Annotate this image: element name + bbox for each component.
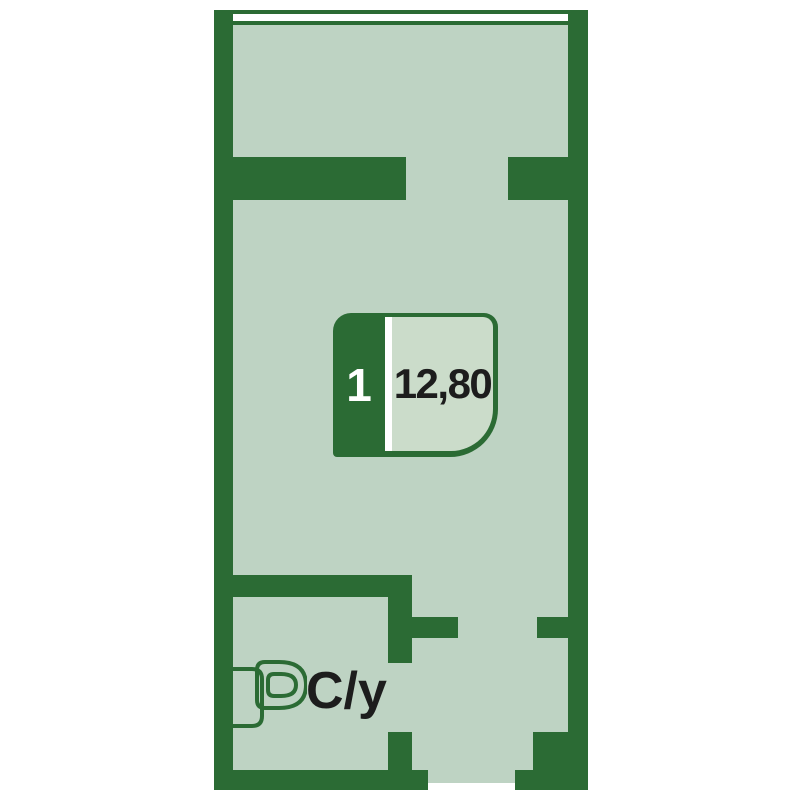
wall-divider-right bbox=[508, 157, 568, 200]
wall-bathroom-side-lower bbox=[388, 732, 412, 772]
area-value-box: 12,80 bbox=[392, 317, 493, 451]
window-strip bbox=[233, 10, 568, 25]
wall-right bbox=[568, 10, 588, 790]
wall-bathroom-door-stub bbox=[412, 617, 458, 638]
wall-right-stub bbox=[537, 617, 568, 638]
badge-divider bbox=[385, 317, 392, 451]
wall-divider-left bbox=[233, 157, 406, 200]
room-number: 1 bbox=[333, 313, 385, 457]
floor-plan: 1 12,80 С/у bbox=[0, 0, 801, 801]
area-value: 12,80 bbox=[394, 360, 492, 408]
bathroom-label: С/у bbox=[306, 658, 387, 724]
wall-bottom-right bbox=[515, 770, 588, 790]
floor-entrance-gap bbox=[428, 770, 515, 783]
area-badge: 1 12,80 bbox=[333, 313, 498, 457]
wall-bottom-left bbox=[214, 770, 428, 790]
wall-corner-l bbox=[533, 732, 568, 772]
wall-bathroom-side-upper bbox=[388, 575, 412, 663]
wall-bathroom-top bbox=[233, 575, 412, 597]
toilet-icon bbox=[229, 660, 307, 728]
